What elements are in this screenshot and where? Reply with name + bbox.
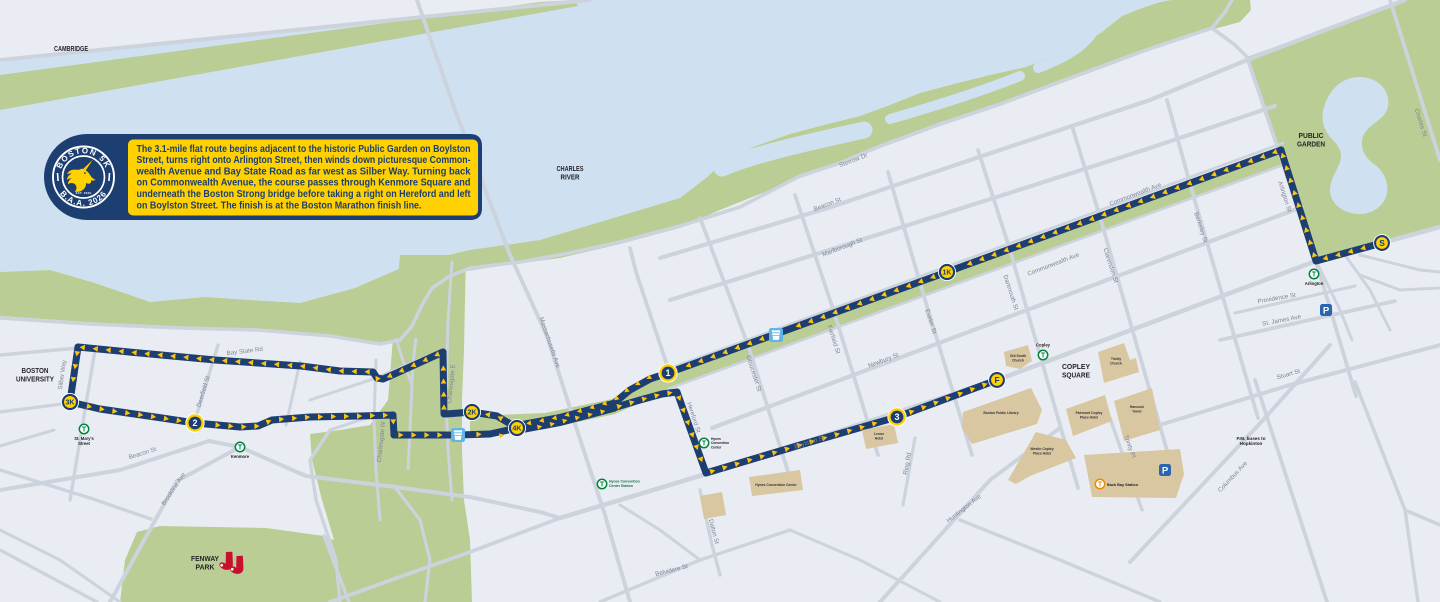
svg-text:F: F: [994, 375, 999, 385]
svg-text:2: 2: [192, 418, 197, 428]
svg-text:Hopkinton: Hopkinton: [1240, 441, 1263, 446]
svg-text:P: P: [1162, 465, 1169, 476]
svg-text:The 3.1-mile flat route begins: The 3.1-mile flat route begins adjacent …: [137, 144, 471, 155]
svg-text:Place Hotel: Place Hotel: [1033, 451, 1051, 455]
svg-text:3K: 3K: [66, 399, 75, 406]
svg-text:S: S: [1379, 238, 1385, 248]
svg-text:Tower: Tower: [1132, 409, 1142, 413]
svg-text:2K: 2K: [468, 409, 477, 416]
svg-text:Fairmont Copley: Fairmont Copley: [1076, 411, 1103, 415]
svg-text:P: P: [1323, 305, 1330, 316]
svg-text:EST. 2009: EST. 2009: [76, 191, 92, 195]
svg-text:T: T: [1098, 482, 1103, 489]
svg-text:on Boylston Street. The finish: on Boylston Street. The finish is at the…: [137, 200, 422, 211]
svg-text:T: T: [1041, 353, 1046, 360]
svg-text:Old South: Old South: [1010, 354, 1026, 358]
svg-text:on Commonwealth Avenue, the co: on Commonwealth Avenue, the course passe…: [137, 178, 471, 189]
svg-text:1: 1: [665, 368, 670, 378]
svg-text:Center: Center: [711, 445, 722, 449]
svg-text:Hynes Convention Center: Hynes Convention Center: [755, 483, 797, 487]
svg-text:Back Bay Station: Back Bay Station: [1107, 483, 1139, 487]
svg-text:Church: Church: [1012, 358, 1024, 362]
svg-text:Hotel: Hotel: [875, 436, 884, 440]
svg-text:Center Station: Center Station: [609, 484, 633, 488]
svg-text:Lenox: Lenox: [874, 432, 884, 436]
svg-text:Hancock: Hancock: [1130, 405, 1144, 409]
svg-text:T: T: [238, 445, 243, 452]
svg-text:4K: 4K: [513, 425, 522, 432]
svg-text:T: T: [1312, 272, 1317, 279]
svg-text:wealth Avenue and Bay State Ro: wealth Avenue and Bay State Road as far …: [136, 166, 471, 177]
svg-text:Street: Street: [78, 441, 90, 446]
svg-text:T: T: [82, 427, 87, 434]
svg-text:CAMBRIDGE: CAMBRIDGE: [54, 44, 88, 53]
svg-text:UNIVERSITY: UNIVERSITY: [16, 375, 54, 384]
svg-text:GARDEN: GARDEN: [1297, 140, 1325, 149]
svg-text:Trinity: Trinity: [1111, 357, 1121, 361]
svg-text:T: T: [702, 441, 707, 448]
svg-text:Kenmore: Kenmore: [231, 454, 250, 459]
svg-text:Arlington: Arlington: [1305, 281, 1324, 286]
svg-text:SQUARE: SQUARE: [1062, 371, 1090, 380]
svg-text:PARK: PARK: [196, 563, 216, 572]
svg-text:Boston Public Library: Boston Public Library: [983, 411, 1018, 415]
svg-text:underneath the Boston Strong b: underneath the Boston Strong bridge befo…: [137, 189, 472, 200]
svg-text:Westin Copley: Westin Copley: [1030, 447, 1053, 451]
svg-text:Hynes Convention: Hynes Convention: [609, 480, 640, 484]
svg-text:1K: 1K: [943, 269, 952, 276]
svg-text:Place Hotel: Place Hotel: [1080, 415, 1098, 419]
svg-text:Church: Church: [1110, 361, 1122, 365]
svg-text:3: 3: [894, 412, 899, 422]
svg-text:Street, turns right onto Arlin: Street, turns right onto Arlington Stree…: [137, 155, 471, 166]
svg-text:Copley: Copley: [1036, 343, 1051, 348]
svg-text:T: T: [600, 482, 605, 489]
svg-text:RIVER: RIVER: [561, 173, 581, 182]
